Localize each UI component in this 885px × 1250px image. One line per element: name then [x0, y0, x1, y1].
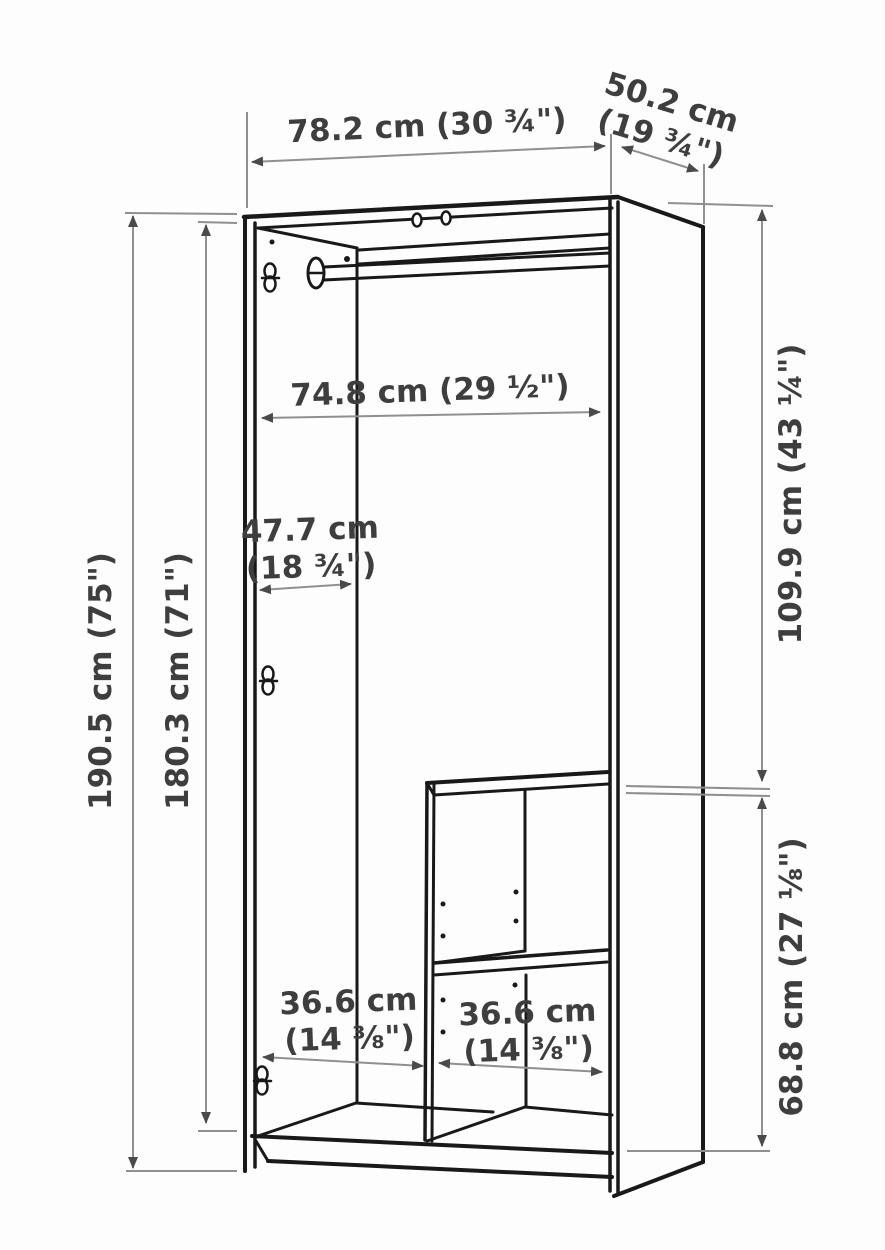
- dim-right-compartment-line2: (14 ⅜"): [443, 1029, 614, 1072]
- dim-right-compartment-line1: 36.6 cm: [442, 992, 613, 1035]
- hinge-top: [262, 264, 279, 292]
- dim-interior-depth-line2: (18 ¾"): [238, 546, 384, 588]
- dim-left-compartment-width-label: 36.6 cm (14 ⅜"): [263, 981, 435, 1061]
- wardrobe-line-art: [0, 0, 885, 1250]
- dim-left-compartment-line1: 36.6 cm: [263, 981, 434, 1024]
- dim-upper-section-height-label: 109.9 cm (43 ¼"): [769, 324, 813, 664]
- drill-holes: [270, 212, 519, 1035]
- dim-interior-depth-line1: 47.7 cm: [237, 509, 383, 551]
- dim-lower-section-height-label: 68.8 cm (27 ⅛"): [770, 807, 814, 1147]
- dim-overall-height-label: 190.5 cm (75"): [79, 511, 123, 851]
- dim-interior-height-label: 180.3 cm (71"): [156, 511, 200, 851]
- dim-left-compartment-line2: (14 ⅜"): [264, 1018, 435, 1061]
- wardrobe-dimension-diagram: 78.2 cm (30 ¾") 50.2 cm (19 ¾") 190.5 cm…: [0, 0, 885, 1250]
- dim-interior-depth-label: 47.7 cm (18 ¾"): [237, 509, 384, 588]
- dim-right-compartment-width-label: 36.6 cm (14 ⅜"): [442, 992, 614, 1072]
- hinge-middle: [260, 667, 277, 695]
- shelf-unit: [425, 772, 608, 1141]
- hinge-bottom: [254, 1067, 271, 1095]
